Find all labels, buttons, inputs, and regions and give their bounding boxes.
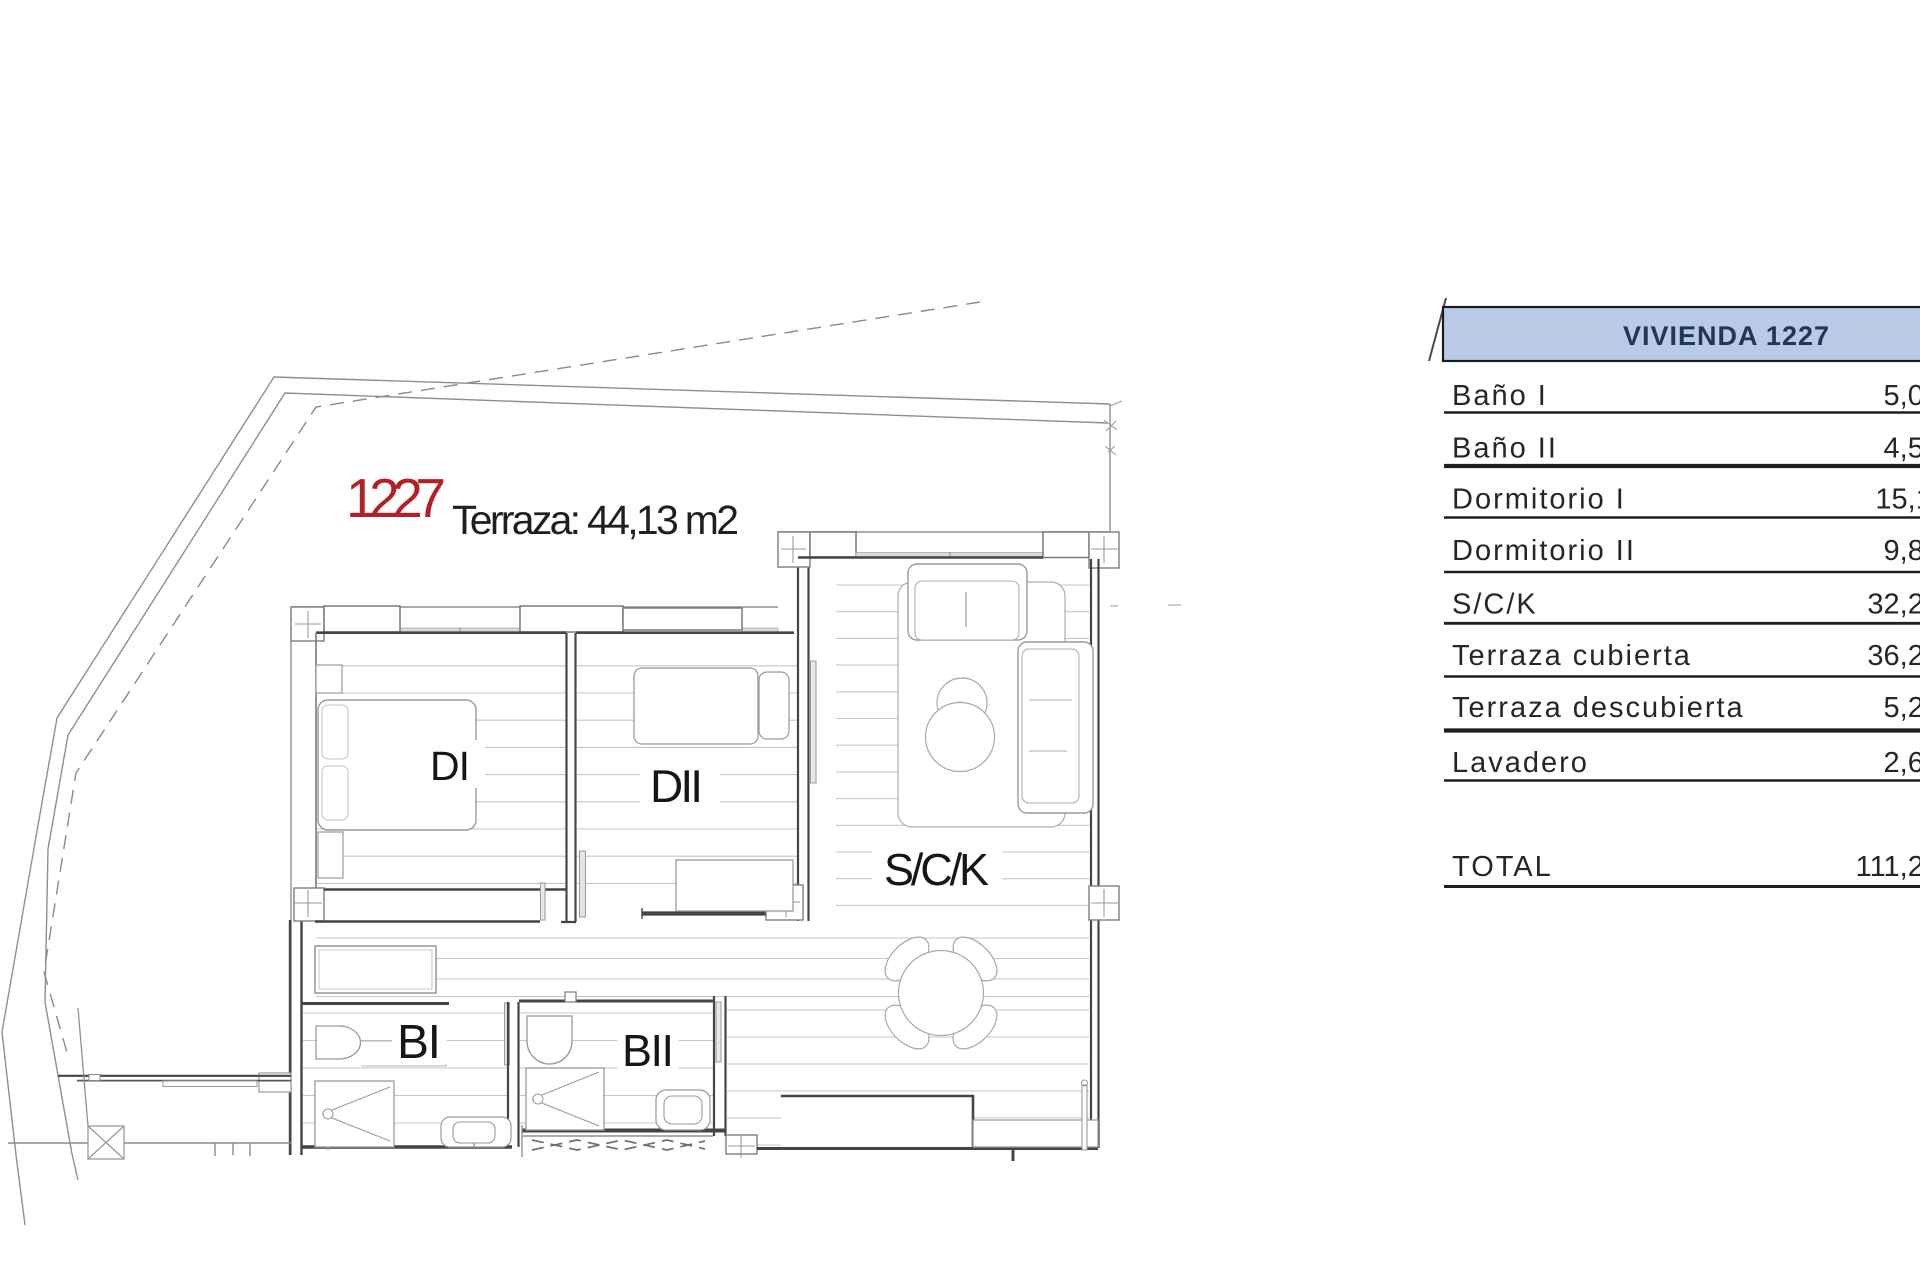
svg-text:VIVIENDA 1227: VIVIENDA 1227 bbox=[1623, 321, 1829, 351]
svg-text:Lavadero: Lavadero bbox=[1452, 747, 1589, 779]
svg-text:2,65: 2,65 bbox=[1884, 747, 1920, 779]
svg-text:15,15: 15,15 bbox=[1875, 484, 1920, 516]
svg-text:Dormitorio I: Dormitorio I bbox=[1452, 484, 1626, 516]
svg-text:1227: 1227 bbox=[346, 467, 446, 529]
svg-text:TOTAL: TOTAL bbox=[1452, 851, 1553, 883]
svg-text:36,25: 36,25 bbox=[1867, 640, 1920, 672]
svg-text:4,55: 4,55 bbox=[1884, 433, 1920, 465]
svg-text:Dormitorio II: Dormitorio II bbox=[1452, 535, 1636, 567]
svg-text:BI: BI bbox=[397, 1016, 441, 1069]
svg-text:5,25: 5,25 bbox=[1884, 692, 1920, 724]
svg-text:Baño II: Baño II bbox=[1452, 433, 1558, 465]
svg-text:BII: BII bbox=[622, 1025, 674, 1076]
svg-text:S/C/K: S/C/K bbox=[884, 844, 989, 895]
svg-text:Terraza cubierta: Terraza cubierta bbox=[1452, 640, 1692, 672]
svg-text:Terraza descubierta: Terraza descubierta bbox=[1452, 692, 1745, 724]
svg-text:111,25: 111,25 bbox=[1856, 851, 1920, 883]
svg-text:9,85: 9,85 bbox=[1884, 535, 1920, 567]
svg-text:DI: DI bbox=[430, 743, 470, 789]
svg-text:5,05: 5,05 bbox=[1884, 380, 1920, 412]
svg-text:32,25: 32,25 bbox=[1867, 589, 1920, 621]
svg-text:Terraza: 44,13 m2: Terraza: 44,13 m2 bbox=[452, 497, 739, 543]
svg-text:S/C/K: S/C/K bbox=[1452, 589, 1538, 621]
svg-text:Baño I: Baño I bbox=[1452, 380, 1548, 412]
svg-text:DII: DII bbox=[650, 760, 703, 812]
